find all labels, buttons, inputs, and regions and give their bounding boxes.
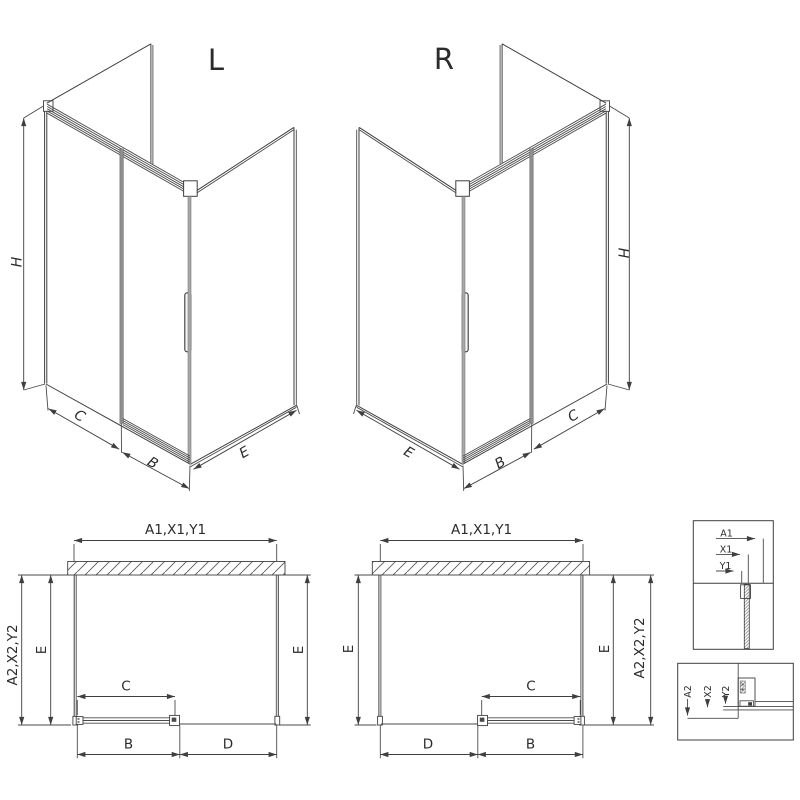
plan-left-dim-d-label: D [223, 737, 233, 753]
iso-left-dim-e: E [194, 406, 300, 470]
plan-right-dim-c-label: C [526, 679, 535, 695]
plan-right-dim-e-left-label: E [341, 645, 357, 654]
iso-left-rail-corner-block [184, 181, 198, 197]
iso-left-dim-b-label: B [144, 454, 160, 473]
iso-left-back-panel [47, 44, 153, 164]
plan-left-dim-a1-label: A1,X1,Y1 [145, 522, 206, 538]
iso-right-side-panel [357, 127, 463, 466]
plan-left-dim-e-left-label: E [34, 646, 50, 655]
plan-right-dim-c: C [482, 679, 581, 716]
iso-right-dim-h-label: H [615, 248, 631, 259]
plan-left-glass-panels [73, 575, 280, 725]
detail-box-wall-profile: A1 X1 Y1 [693, 521, 773, 650]
shower-enclosure-technical-drawing: L H [0, 0, 800, 800]
plan-view-left: A1,X1,Y1 A2,X2,Y2 E E [5, 522, 311, 758]
plan-right-dim-e-left: E [341, 575, 377, 725]
iso-right-bottom-edge [463, 384, 607, 464]
iso-right-corner-profile [462, 197, 465, 463]
plan-right-dim-a1: A1,X1,Y1 [380, 522, 583, 561]
iso-left-dim-e-label: E [237, 444, 253, 462]
iso-right-dim-c: C [532, 386, 608, 453]
iso-right-wall-profile [600, 101, 610, 384]
plan-left-door-rail [76, 715, 179, 725]
iso-right-rail-corner-block [456, 181, 470, 197]
plan-right-dim-b: B [478, 726, 583, 759]
plan-left-dim-b-label: B [124, 737, 133, 753]
plan-left-dim-outer-label: A2,X2,Y2 [5, 624, 21, 685]
plan-right-dim-e-right-label: E [597, 645, 613, 654]
plan-right-dim-a1-label: A1,X1,Y1 [451, 522, 512, 538]
plan-view-right: A1,X1,Y1 E E A2,X2,Y2 [341, 522, 654, 758]
plan-right-glass-panels [378, 575, 585, 725]
iso-left-title: L [208, 43, 224, 77]
detail-x1-label: X1 [720, 544, 733, 555]
plan-right-dim-outer: A2,X2,Y2 [632, 575, 650, 725]
detail-a1-label: A1 [720, 529, 733, 540]
plan-right-dim-outer-label: A2,X2,Y2 [632, 617, 648, 678]
iso-right-back-panel [500, 44, 606, 164]
detail-y1-label: Y1 [719, 561, 732, 572]
detail-y2-label: Y2 [721, 686, 732, 699]
plan-left-dim-a1: A1,X1,Y1 [74, 522, 277, 561]
iso-left-corner-profile [188, 197, 191, 463]
iso-left-dim-c: C [46, 386, 122, 453]
detail-box-bottom-rail: A2 X2 Y2 [678, 663, 794, 740]
plan-right-wall-hatch [372, 562, 589, 576]
plan-left-dim-b: B [77, 726, 180, 759]
iso-left-bottom-edge [46, 384, 190, 464]
detail-x2-label: X2 [703, 685, 714, 698]
plan-right-dim-d-label: D [423, 737, 433, 753]
plan-right-door-rail [478, 715, 581, 725]
iso-left-sliding-door-edge [120, 149, 123, 424]
plan-left-dim-e-left: E [34, 575, 50, 725]
iso-view-left: L H [9, 43, 299, 491]
iso-left-side-panel [190, 127, 296, 466]
detail-a2-label: A2 [683, 685, 694, 698]
plan-left-dim-c-label: C [121, 679, 130, 695]
iso-left-wall-profile [44, 101, 54, 384]
plan-left-wall-hatch [68, 562, 285, 576]
plan-left-dim-d: D [180, 726, 277, 759]
detail-glass-section [744, 584, 749, 648]
iso-right-dim-e-label: E [401, 444, 417, 462]
plan-right-dim-d: D [380, 726, 478, 759]
plan-left-dim-e-right-label: E [291, 646, 307, 655]
iso-right-title: R [434, 42, 454, 76]
plan-left-dim-c: C [77, 679, 175, 716]
iso-right-dim-b-label: B [492, 454, 508, 473]
plan-right-dim-b-label: B [526, 737, 535, 753]
iso-right-dim-height: H [608, 105, 631, 390]
iso-left-dim-height: H [9, 105, 45, 390]
iso-right-dim-e: E [354, 406, 460, 470]
iso-right-sliding-door-edge [530, 149, 533, 424]
iso-view-right: R H [354, 42, 631, 491]
iso-left-dim-h-label: H [9, 256, 25, 267]
drawing-canvas: L H [0, 0, 800, 800]
plan-left-dim-e-right: E [280, 575, 311, 725]
